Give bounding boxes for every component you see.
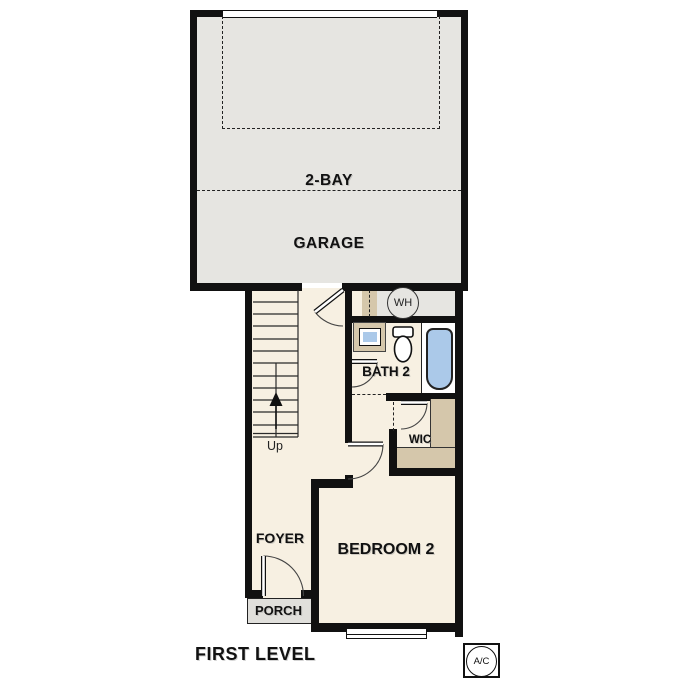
stairs-up-arrow	[270, 392, 283, 429]
foyer-label: FOYER	[230, 530, 330, 546]
front-entry-door	[264, 556, 304, 596]
garage-label-line1: 2-BAY	[229, 170, 429, 191]
garage-label-line2: GARAGE	[229, 233, 429, 254]
stairs-up-label: Up	[255, 439, 295, 453]
bedroom-door	[348, 444, 383, 479]
porch-label: PORCH	[248, 603, 309, 618]
bedroom2-label: BEDROOM 2	[306, 541, 466, 559]
plan-linework	[0, 0, 687, 687]
level-title: FIRST LEVEL	[195, 644, 395, 665]
bath2-label: BATH 2	[336, 364, 436, 379]
toilet	[393, 327, 413, 362]
garage-label: 2-BAY GARAGE	[229, 128, 429, 296]
floor-plan: WH A/C	[0, 0, 687, 687]
wic-door	[401, 403, 427, 430]
wic-label: WIC	[395, 434, 445, 446]
